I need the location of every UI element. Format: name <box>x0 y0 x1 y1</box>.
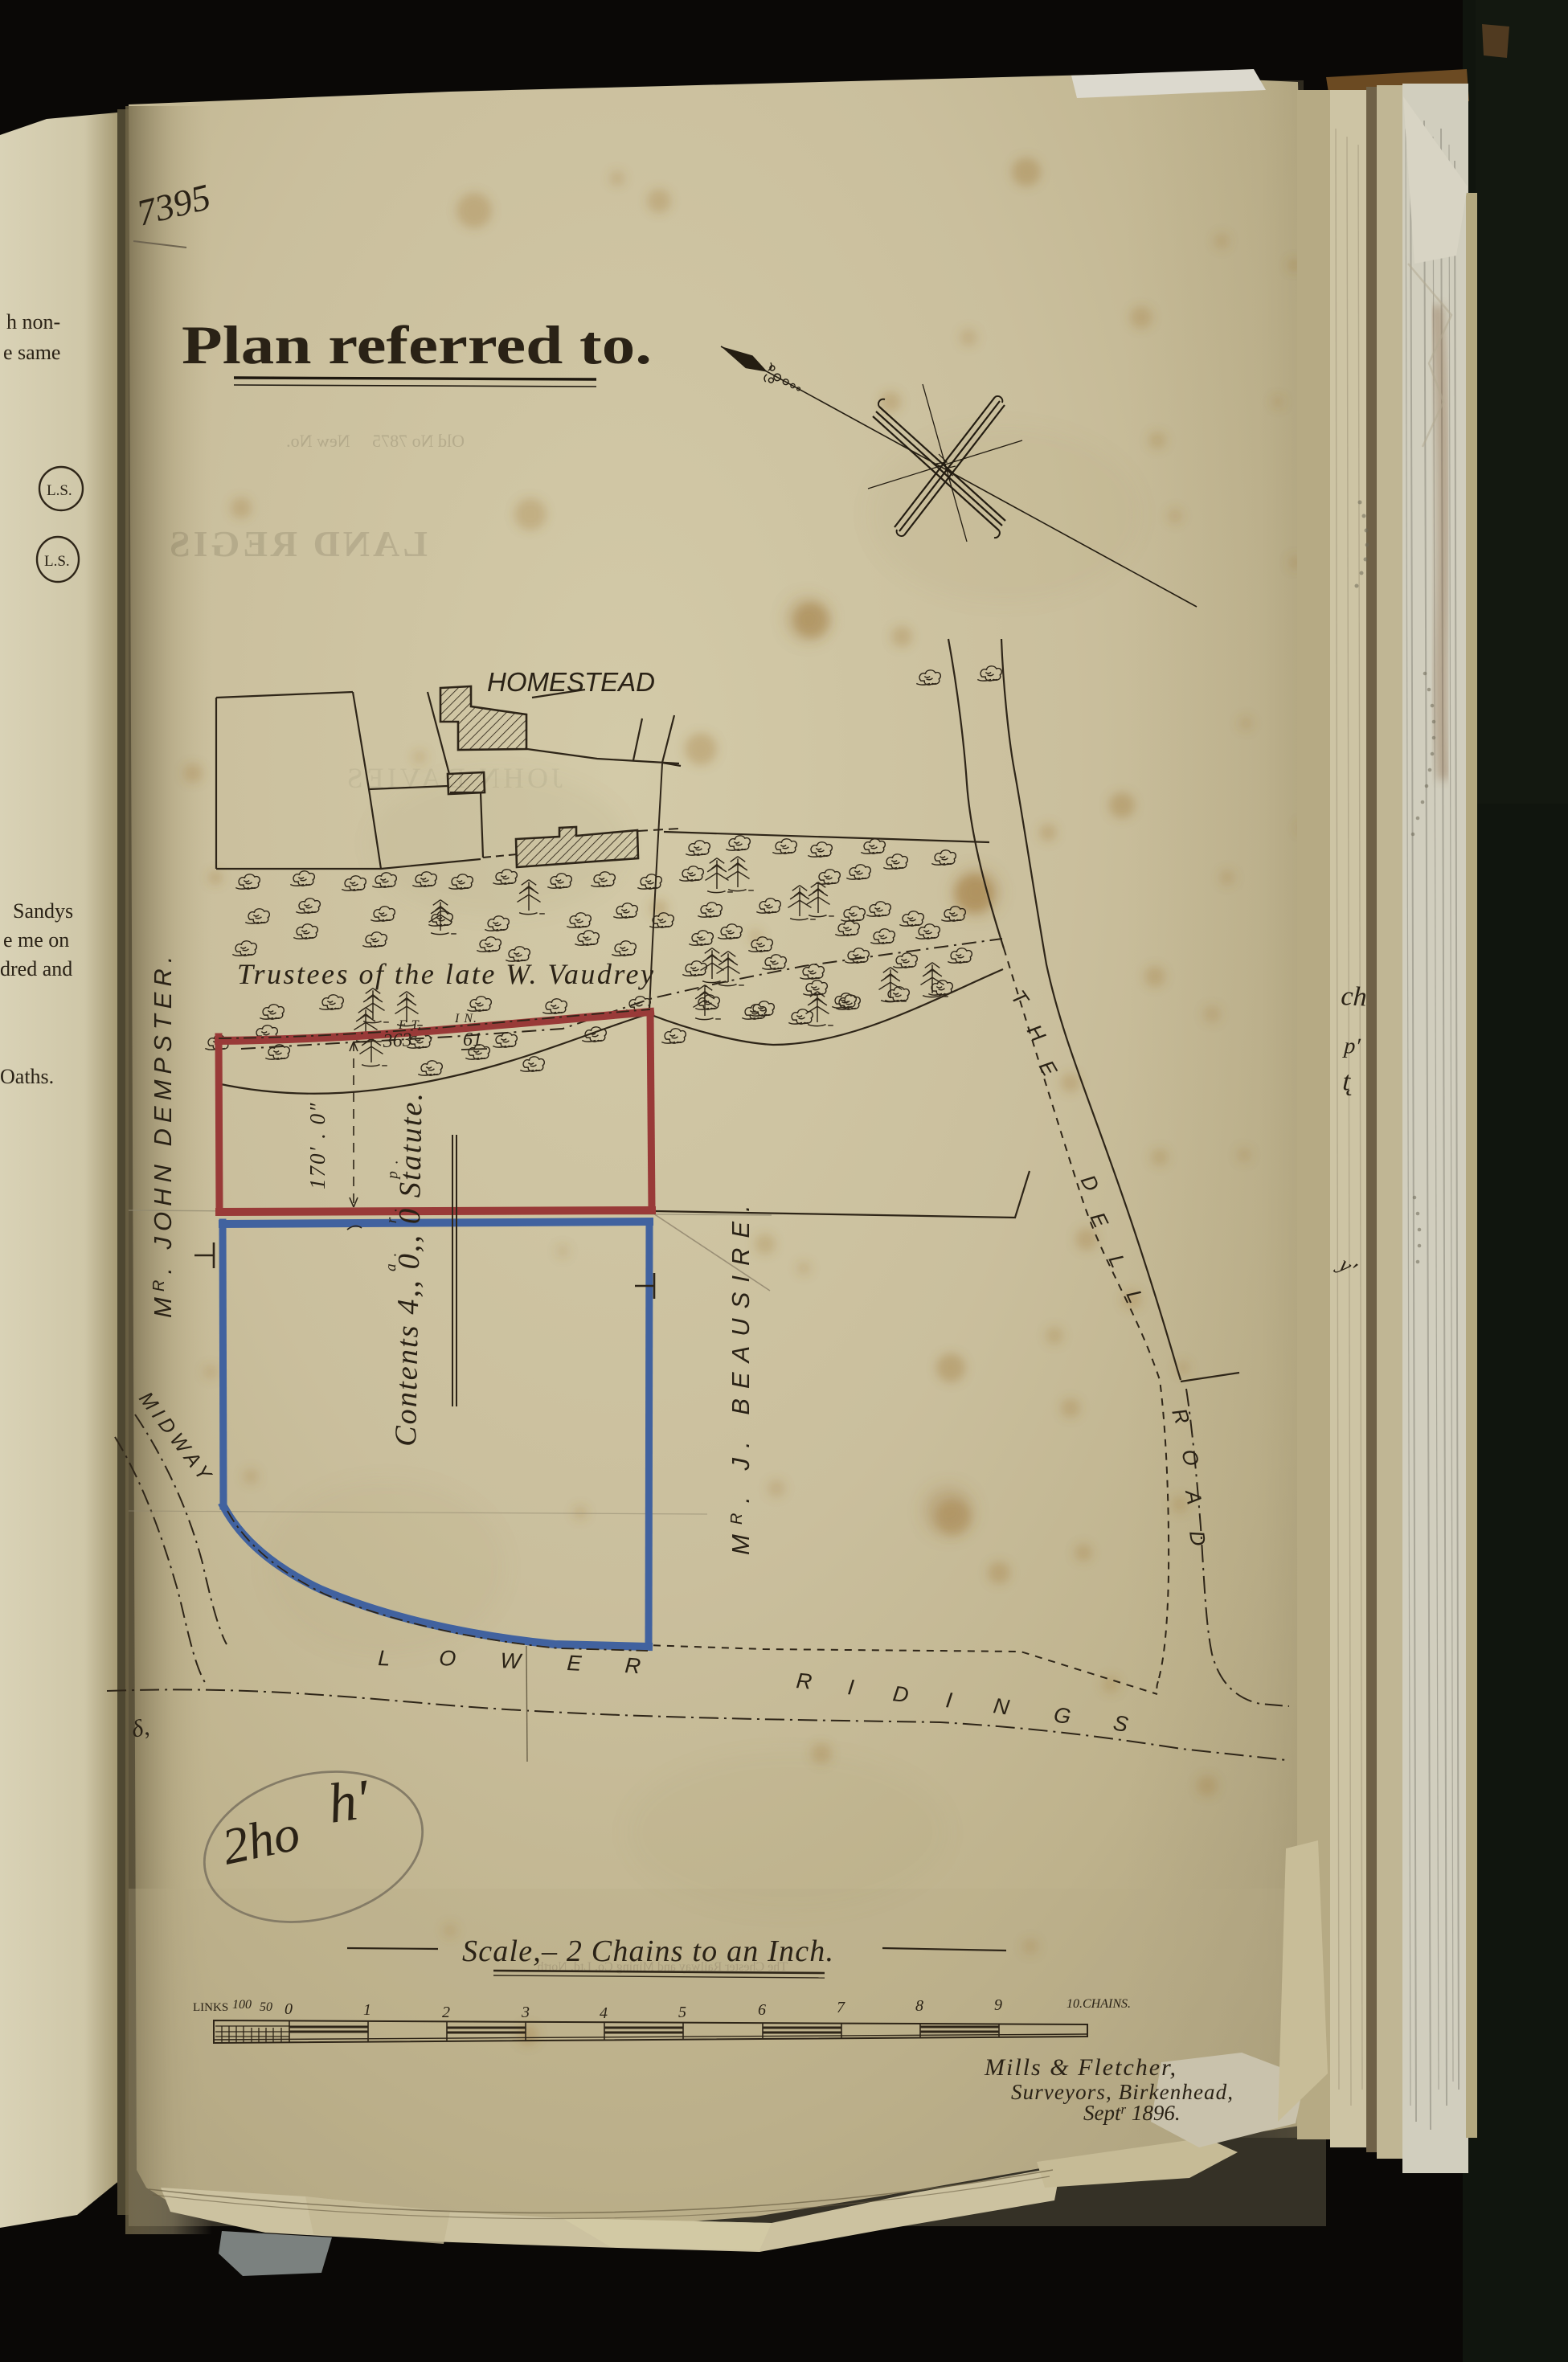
svg-text:MR. JOHN DEMPSTER.: MR. JOHN DEMPSTER. <box>149 951 177 1318</box>
svg-text:L.S.: L.S. <box>47 482 72 499</box>
svg-text:W: W <box>500 1648 524 1673</box>
svg-text:E: E <box>567 1651 583 1676</box>
svg-text:5: 5 <box>678 2004 686 2021</box>
svg-text:363: 363 <box>382 1030 412 1052</box>
svg-text:1: 1 <box>363 2001 371 2019</box>
svg-text:dred and: dred and <box>0 957 72 980</box>
svg-text:2: 2 <box>442 2004 450 2021</box>
svg-text:100: 100 <box>232 1998 252 2012</box>
svg-text:170′ . 0″: 170′ . 0″ <box>305 1102 330 1189</box>
svg-text:Mills & Fletcher,: Mills & Fletcher, <box>984 2054 1176 2081</box>
svg-text:LAND REGIS: LAND REGIS <box>166 523 428 564</box>
svg-text:9: 9 <box>994 1996 1002 2014</box>
svg-text:The Chester Railway and Mining: The Chester Railway and Mining Co. Ltd. … <box>537 1960 788 1974</box>
svg-text:0: 0 <box>285 2000 293 2018</box>
svg-text:Plan referred to.: Plan referred to. <box>182 314 652 375</box>
svg-text:e same: e same <box>3 341 60 364</box>
svg-text:4: 4 <box>600 2004 608 2022</box>
svg-text:p′: p′ <box>1342 1034 1362 1059</box>
svg-text:Trustees of the late W. Vaudr: Trustees of the late W. Vaudrey <box>237 958 653 990</box>
svg-text:D: D <box>891 1681 910 1707</box>
svg-text:e me on: e me on <box>3 928 69 952</box>
svg-text:MR. J. BEAUSIRE.: MR. J. BEAUSIRE. <box>727 1195 755 1555</box>
svg-text:61: 61 <box>463 1030 482 1050</box>
svg-text:Oaths.: Oaths. <box>0 1065 54 1088</box>
svg-text:Old No 7875 New No.: Old No 7875 New No. <box>286 431 465 451</box>
svg-text:ch: ch <box>1341 981 1368 1013</box>
svg-text:LINKS: LINKS <box>193 2001 228 2014</box>
svg-text:Sandys: Sandys <box>13 899 73 923</box>
svg-text:a. r. p.: a. r. p. <box>383 1152 402 1271</box>
svg-text:HOMESTEAD: HOMESTEAD <box>487 667 657 697</box>
svg-text:Septr 1896.: Septr 1896. <box>1083 2101 1181 2125</box>
svg-text:50: 50 <box>260 2000 272 2014</box>
svg-text:R: R <box>795 1668 813 1694</box>
svg-text:I N.: I N. <box>454 1012 477 1025</box>
svg-text:L.S.: L.S. <box>44 553 70 570</box>
svg-text:R: R <box>624 1653 642 1678</box>
svg-text:6: 6 <box>758 2001 766 2019</box>
svg-text:L: L <box>378 1646 391 1671</box>
svg-text:Surveyors, Birkenhead,: Surveyors, Birkenhead, <box>1011 2080 1233 2104</box>
svg-text:h non-: h non- <box>6 310 60 334</box>
svg-text:7: 7 <box>837 1999 845 2016</box>
svg-text:8: 8 <box>915 1997 923 2015</box>
svg-text:O: O <box>439 1646 456 1671</box>
svg-text:10.CHAINS.: 10.CHAINS. <box>1066 1997 1131 2011</box>
svg-text:3: 3 <box>521 2004 530 2021</box>
